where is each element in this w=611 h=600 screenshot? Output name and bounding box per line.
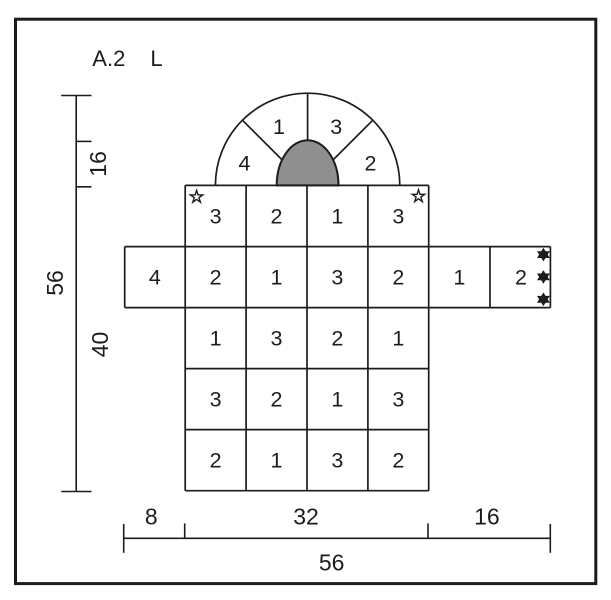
- svg-text:2: 2: [210, 266, 222, 290]
- svg-text:2: 2: [365, 152, 377, 176]
- svg-text:16: 16: [474, 503, 500, 529]
- svg-text:8: 8: [145, 503, 158, 529]
- svg-text:4: 4: [149, 266, 161, 290]
- svg-text:1: 1: [331, 205, 343, 229]
- svg-text:1: 1: [271, 266, 283, 290]
- svg-text:3: 3: [331, 449, 343, 473]
- svg-text:A.2: A.2: [92, 46, 125, 71]
- svg-text:3: 3: [331, 266, 343, 290]
- svg-text:1: 1: [271, 449, 283, 473]
- svg-text:3: 3: [271, 327, 283, 351]
- svg-text:32: 32: [293, 503, 319, 529]
- svg-text:2: 2: [392, 449, 404, 473]
- svg-text:40: 40: [87, 332, 113, 358]
- svg-text:16: 16: [85, 151, 111, 177]
- svg-text:3: 3: [392, 205, 404, 229]
- svg-text:3: 3: [210, 388, 222, 412]
- svg-text:1: 1: [392, 327, 404, 351]
- svg-text:2: 2: [392, 266, 404, 290]
- svg-text:4: 4: [239, 152, 251, 176]
- svg-text:2: 2: [331, 327, 343, 351]
- svg-text:56: 56: [319, 549, 345, 575]
- svg-text:2: 2: [210, 449, 222, 473]
- svg-text:L: L: [150, 46, 162, 71]
- svg-text:1: 1: [331, 388, 343, 412]
- svg-text:2: 2: [271, 388, 283, 412]
- svg-text:1: 1: [210, 327, 222, 351]
- svg-text:3: 3: [392, 388, 404, 412]
- svg-text:2: 2: [271, 205, 283, 229]
- svg-text:1: 1: [273, 115, 285, 139]
- svg-text:3: 3: [330, 115, 342, 139]
- svg-text:1: 1: [453, 266, 465, 290]
- svg-text:56: 56: [42, 270, 68, 296]
- svg-text:3: 3: [210, 205, 222, 229]
- svg-text:2: 2: [515, 266, 527, 290]
